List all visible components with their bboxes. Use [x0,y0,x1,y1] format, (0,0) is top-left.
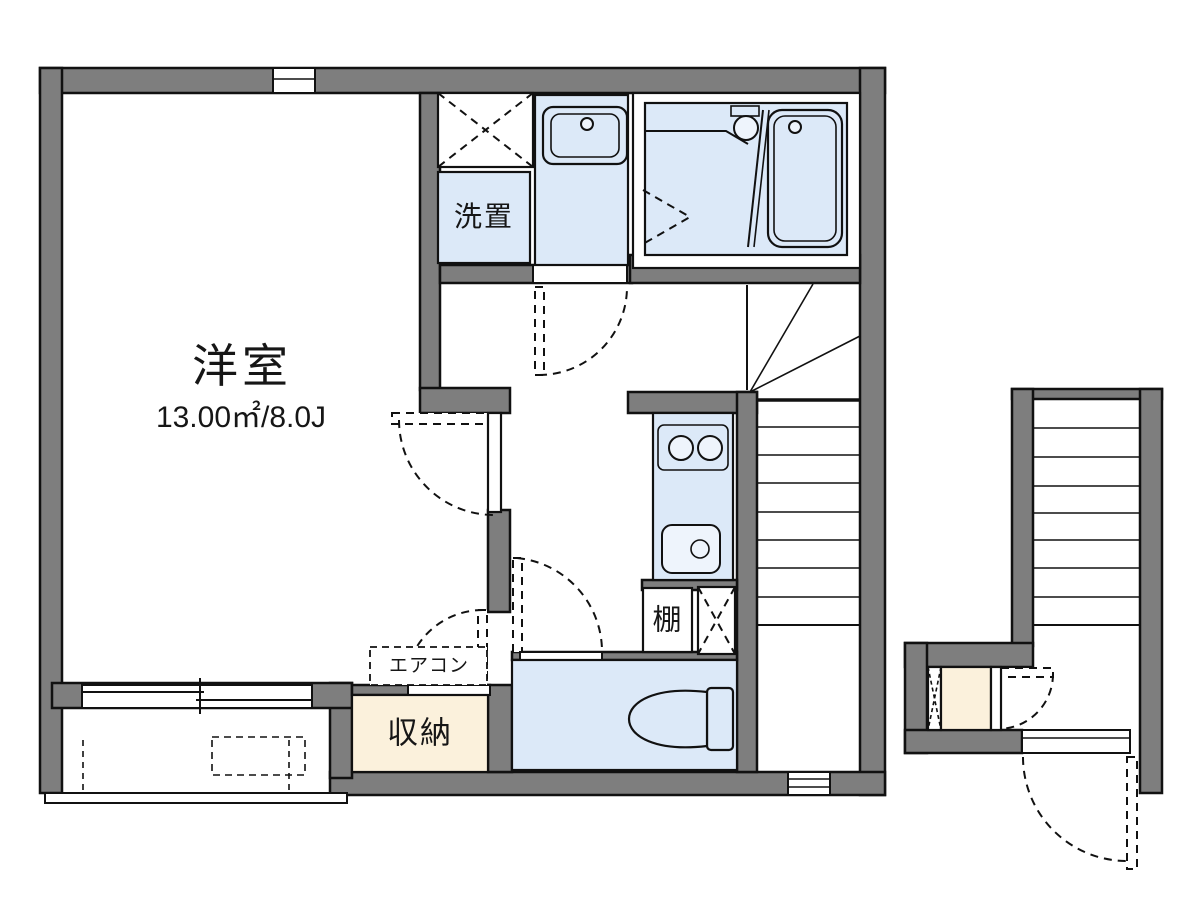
shelf-label: 棚 [652,607,681,636]
stairs-entrance [1033,428,1140,625]
floorplan-drawing [0,0,1200,912]
laundry-label: 洗置 [454,203,514,231]
washbasin [543,107,627,164]
door-entrance-main [1023,757,1137,869]
toilet-door-threshold [520,652,602,660]
door-toilet [513,558,602,652]
stair-bottom-window [788,772,830,795]
storage-label: 収納 [387,718,453,749]
toilet-room [512,660,737,770]
door-main-room [392,413,501,515]
aircon-label: エアコン [389,657,469,676]
bath-faucet [734,116,758,140]
stove-burner [669,436,693,460]
door-washroom [535,287,627,375]
genkan-step [941,667,991,730]
door-entrance-inner [991,667,1053,730]
top-wall-window [273,68,315,93]
balcony [45,737,347,803]
pipe-space-hatched-mid [698,587,735,654]
stove-burner [698,436,722,460]
entrance-hatched-strip [928,667,941,730]
balcony-railing [45,793,347,803]
toilet-tank [707,688,733,750]
washroom-door-threshold [533,265,627,283]
entrance-threshold [1022,730,1130,753]
pipe-space-hatched-top [438,93,533,167]
floorplan-canvas: 洋室 13.00㎡/8.0J 洗置 棚 エアコン 収納 [0,0,1200,912]
bathroom-unit [633,93,860,268]
bathtub [768,110,842,247]
main-room-size: 13.00㎡/8.0J [156,403,326,433]
balcony-equipment-outline [212,737,305,775]
main-room-label: 洋室 [192,343,292,389]
kitchen-unit [653,413,733,580]
storage-door-threshold [408,685,490,695]
stairs-main [747,284,860,625]
